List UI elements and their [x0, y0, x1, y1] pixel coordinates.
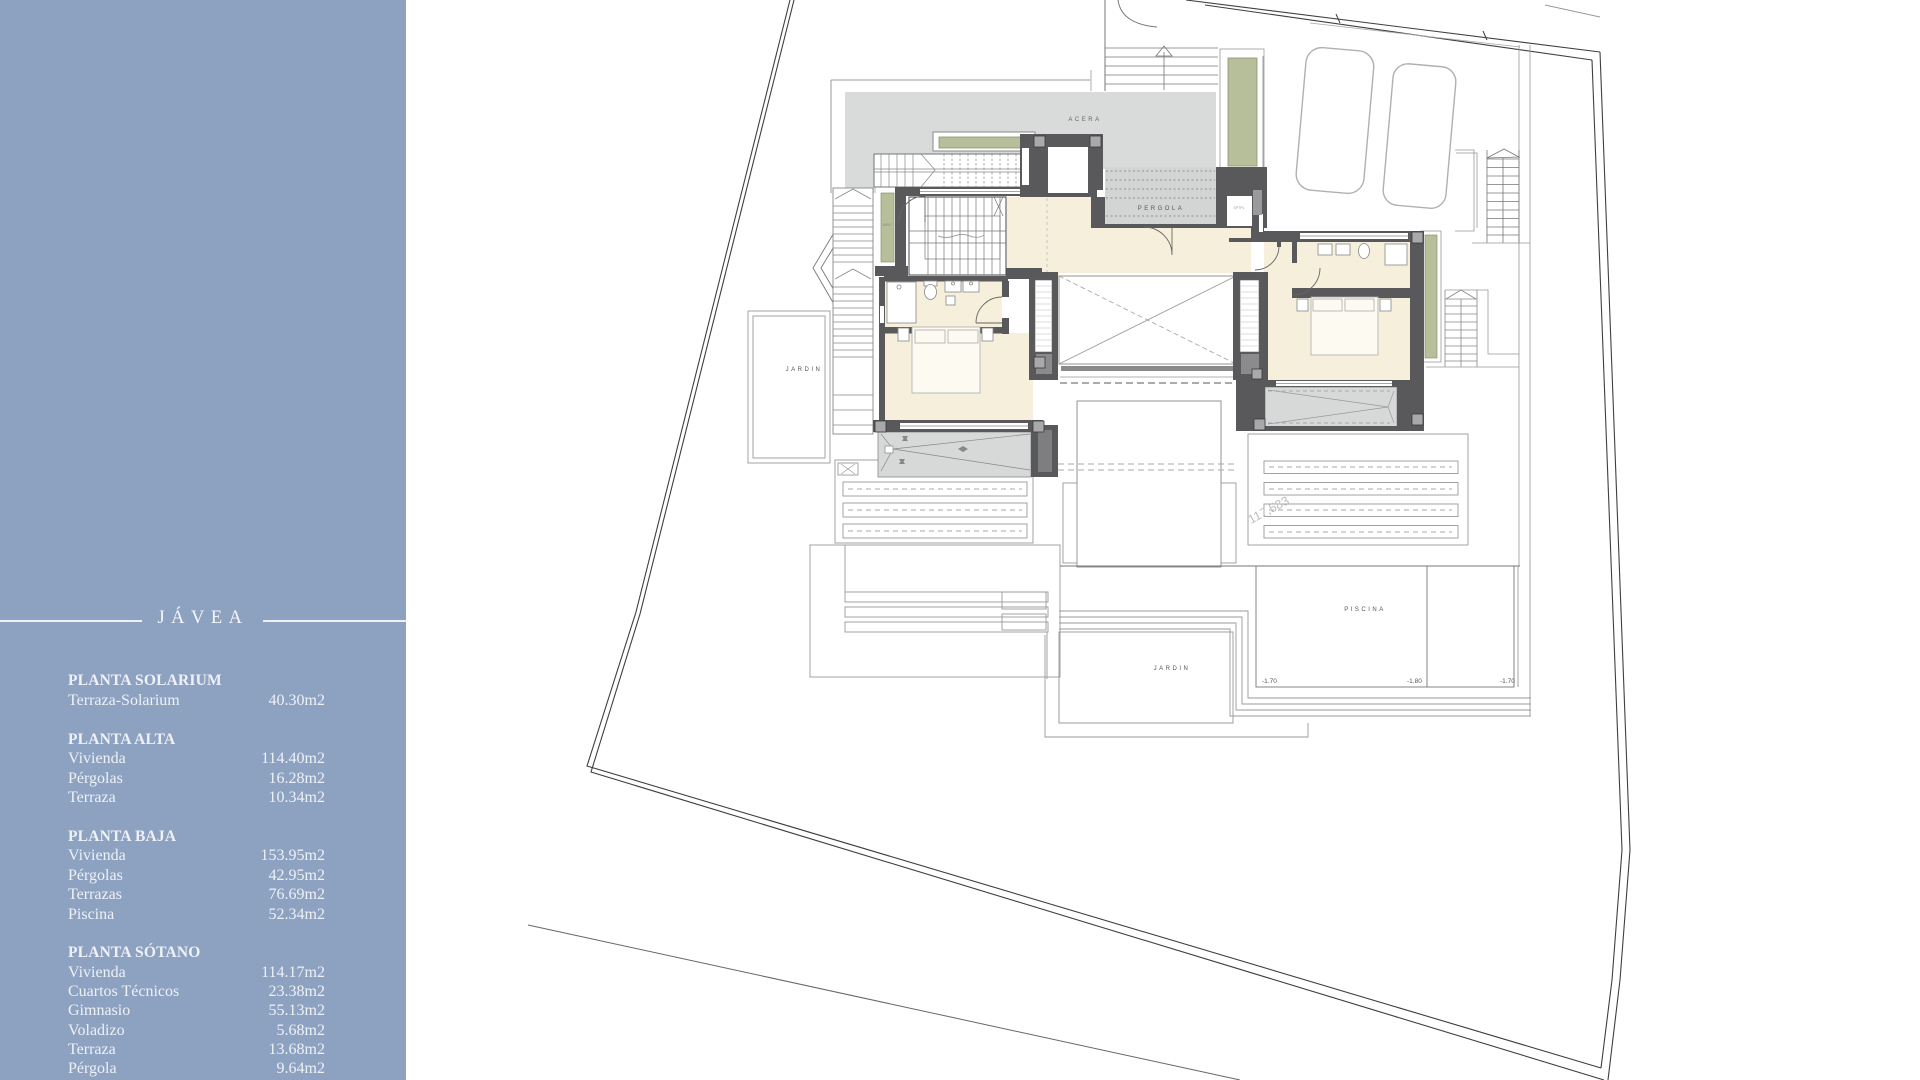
svg-text:ACERA: ACERA: [1068, 117, 1101, 123]
svg-text:PISCINA: PISCINA: [1344, 607, 1386, 613]
svg-text:JARDIN: JARDIN: [1154, 666, 1191, 672]
svg-text:JARDIN: JARDIN: [786, 367, 823, 373]
svg-text:-1.70: -1.70: [1500, 678, 1515, 685]
svg-text:117,583: 117,583: [1246, 493, 1292, 526]
svg-text:-1.70: -1.70: [1262, 678, 1277, 685]
svg-text:-1.80: -1.80: [1407, 678, 1422, 685]
svg-text:PERGOLA: PERGOLA: [1138, 206, 1185, 212]
svg-text:SPTPL: SPTPL: [1233, 206, 1244, 210]
svg-text:JARD.: JARD.: [882, 223, 892, 227]
